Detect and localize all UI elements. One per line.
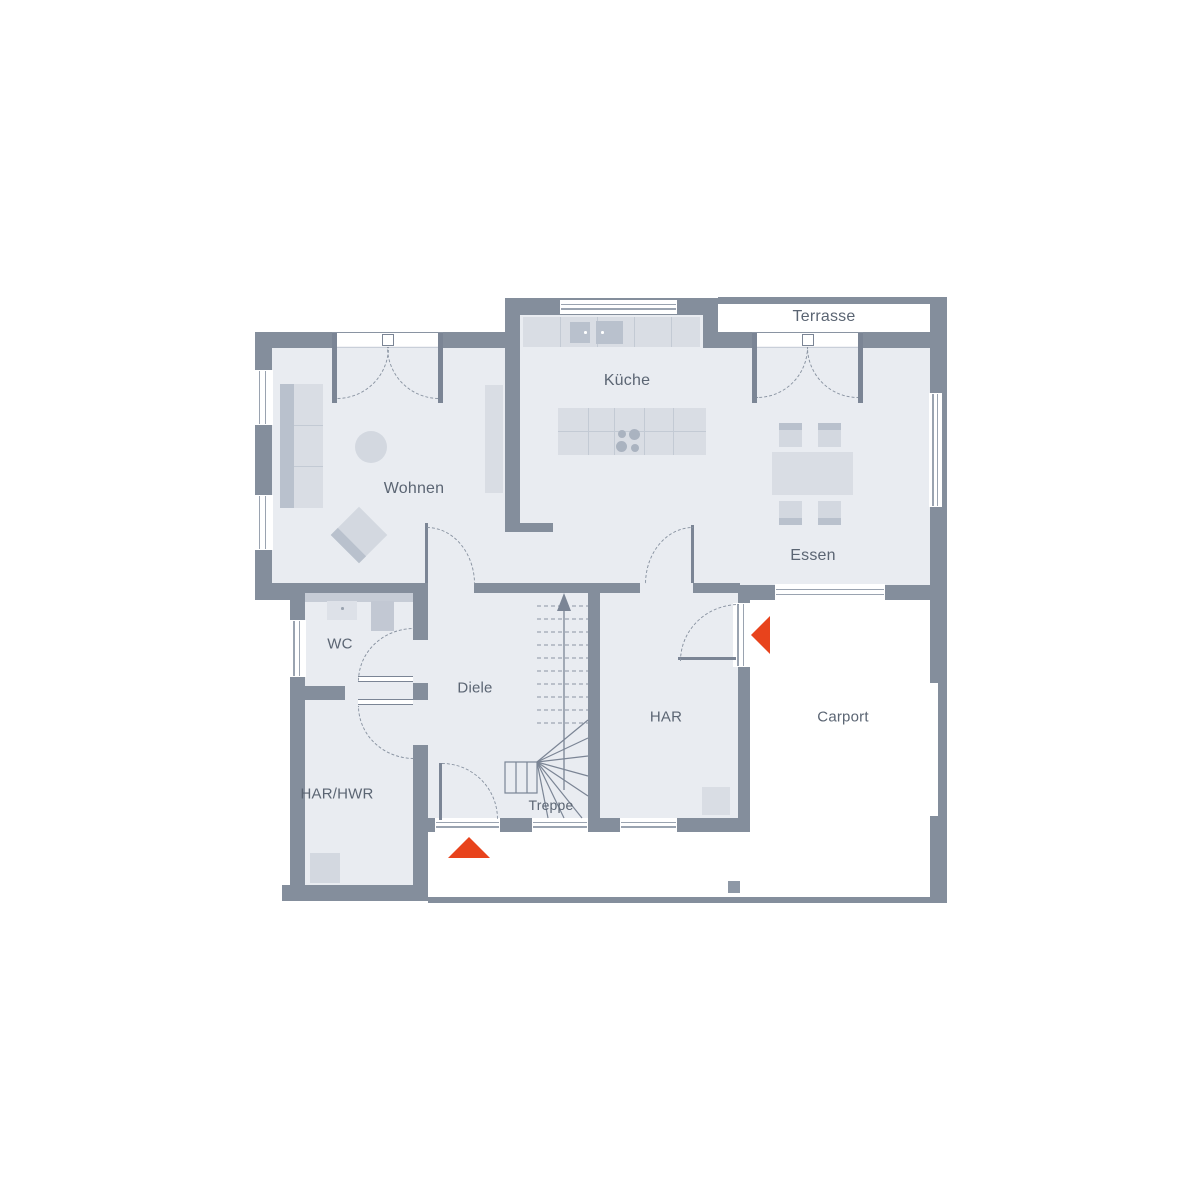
window (620, 818, 677, 832)
wall (505, 523, 553, 532)
shelf-cabinet (485, 385, 503, 493)
window (560, 300, 677, 314)
wall (930, 816, 947, 902)
window (929, 393, 942, 507)
room-label-carport: Carport (817, 709, 868, 726)
stair-up-arrow (557, 593, 571, 790)
room-label-kueche: Küche (604, 372, 650, 390)
wall (677, 818, 750, 832)
wc-counter (305, 593, 413, 602)
dining-chair (818, 501, 841, 525)
room-label-har: HAR (650, 709, 682, 726)
wall (738, 667, 750, 818)
kitchen-counter (523, 317, 700, 347)
wall (863, 332, 930, 348)
hwr-floor-mat (310, 853, 340, 883)
french-door-latch (382, 334, 394, 346)
window (254, 495, 273, 550)
wall (938, 683, 947, 816)
room-label-wc: WC (327, 636, 352, 653)
wall (413, 583, 428, 640)
wall (718, 297, 947, 304)
window (289, 620, 306, 677)
washbasin (327, 601, 357, 620)
room-label-diele: Diele (457, 680, 492, 697)
room-label-essen: Essen (790, 547, 835, 565)
wall (930, 303, 947, 393)
dining-table (772, 452, 853, 495)
wall (718, 332, 752, 348)
french-door-latch (802, 334, 814, 346)
entrance-door-sill (435, 818, 500, 832)
wall (600, 583, 640, 593)
coffee-table (355, 431, 387, 463)
cooktop-burner (618, 430, 626, 438)
har-floor-mat (702, 787, 730, 815)
wall (693, 583, 740, 593)
window (775, 584, 885, 600)
floor-plan-canvas: Terrasse Küche Wohnen Essen WC Diele HAR… (0, 0, 1200, 1200)
dining-chair (779, 501, 802, 525)
wall (930, 600, 947, 683)
cooktop-burner (631, 444, 639, 452)
entrance-arrow-up-icon (448, 837, 490, 858)
wall (428, 897, 947, 903)
window (254, 370, 273, 425)
wall (505, 298, 520, 532)
room-label-terrasse: Terrasse (793, 308, 856, 326)
sofa-seat (294, 384, 323, 508)
carport-post (728, 881, 740, 893)
wall (293, 686, 345, 700)
door-leaf (358, 699, 413, 705)
wall (255, 332, 332, 348)
kitchen-appliance (570, 322, 590, 343)
wall (272, 583, 425, 593)
room-label-har-hwr: HAR/HWR (300, 786, 373, 803)
wall (930, 507, 947, 600)
wall (885, 585, 930, 600)
wall (443, 332, 507, 348)
wall (255, 425, 272, 495)
dining-chair (779, 423, 802, 447)
sofa-backrest (280, 384, 294, 508)
wall (428, 818, 435, 832)
kitchen-appliance (596, 321, 623, 344)
cooktop-burner (616, 441, 627, 452)
toilet (371, 601, 394, 631)
entrance-arrow-left-icon (751, 616, 770, 654)
room-label-treppe: Treppe (528, 797, 573, 813)
wall (282, 885, 428, 901)
french-door-post (858, 333, 863, 403)
dining-chair (818, 423, 841, 447)
wall (703, 298, 718, 348)
wall (255, 550, 272, 583)
wall (740, 585, 775, 600)
wall (413, 683, 428, 700)
wall (413, 745, 428, 885)
room-label-wohnen: Wohnen (384, 480, 445, 498)
cooktop-burner (629, 429, 640, 440)
